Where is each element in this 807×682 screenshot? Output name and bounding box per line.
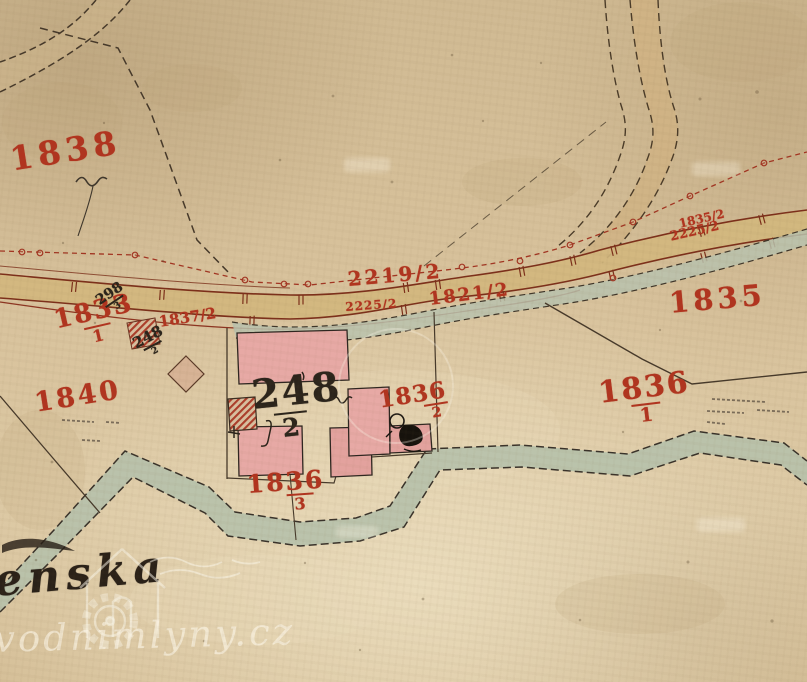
red-survey-lines [0,152,807,287]
map-drawing [0,0,807,682]
building-diamond-outline [168,356,204,392]
parcel-number: 1837/2 [158,307,217,330]
watermark-fragment [336,526,378,538]
script-swash [2,539,75,553]
parcel-number: 2219/2 [347,262,443,289]
parcel-number: 1836 [377,379,447,411]
parcel-label-1838: 1838 [8,128,123,175]
parcel-label-248-2: 2482 [250,369,346,445]
corner-path [0,0,130,92]
paper-speckles [35,54,774,652]
watermark-fragment [344,158,390,172]
parcel-number: 1833 [52,292,136,333]
logo-waterwheel-teeth [86,597,134,645]
parcel-number: 248 [250,369,343,415]
paper-light-patches [130,370,560,645]
parcel-number-denominator: 2 [143,340,167,360]
boundary-stone-markers [19,160,767,287]
parcel-labels-layer: 18381833129831837/2248224822219/22225/21… [0,0,807,682]
meadow-symbol [76,177,107,236]
parcel-number: 1835 [668,282,767,317]
parcel-number-denominator: 3 [105,295,129,317]
parcel-label-1835: 1835 [668,282,767,317]
logo-walls [87,583,158,638]
parcel-number-denominator: 2 [424,401,451,422]
ink-marks [228,372,352,446]
parcel-label-1833-1: 18331 [52,292,140,354]
watermill-symbol [386,414,423,451]
old-road-boundary-line [0,290,580,329]
building-lower-mid [330,427,372,477]
parcel-number-denominator: 2 [274,410,310,443]
road-survey-ticks [71,214,775,326]
watermark-logo-layer [0,0,807,682]
parcel-number: 1838 [8,128,123,175]
parcel-label-1836-2: 18362 [377,379,450,429]
logo-waterwheel-rim [95,606,125,636]
parcel-label-1821-2: 1821/2 [428,282,511,308]
main-road [0,210,807,329]
parcel-number: 1836 [597,369,691,408]
building-lower-left [238,426,303,476]
logo-roof [80,549,165,588]
parcel-number: 1840 [33,378,123,416]
logo-water-waves [150,558,260,578]
parcel-number: 298 [94,281,125,308]
stream-mill-race [0,431,807,612]
paper-grain-overlay [0,0,807,682]
parcel-label-1835-2: 1835/2 [678,209,725,230]
site-watermark-text: vodnimlyny.cz [0,610,296,661]
cadastral-map-canvas[interactable]: 18381833129831837/2248224822219/22225/21… [0,0,807,682]
paper-aging-blotches [0,2,807,634]
parcel-label-2225-2-east: 2225/2 [669,221,720,244]
building-main [237,330,349,384]
parcel-number: 1835/2 [678,209,725,230]
farmstead-buildings [127,318,432,477]
illegible-annotations [62,399,789,441]
watermill-house-logo [80,549,260,645]
parcel-label-1836-1: 18361 [597,369,694,431]
parcel-number: 1821/2 [428,282,511,308]
parcel-number: 1836 [246,468,325,496]
building-right-foot [390,424,432,453]
parcel-label-2225-2-road: 2225/2 [345,298,398,313]
watermark-fragment [692,162,740,176]
parcel-label-298-3: 2983 [94,281,133,319]
place-name-script: enska [0,541,170,607]
parcel-number-denominator: 3 [287,492,315,514]
parcel-label-1837-2: 1837/2 [158,307,217,330]
parcel-number: 2225/2 [669,221,720,244]
watermark-fragment [697,518,745,532]
logo-waterwheel-hub [106,617,114,625]
parcel-number-denominator: 1 [84,322,115,347]
parcel-number: 248 [131,324,165,351]
watermark-circle [339,329,453,443]
building-right-wing [348,387,390,456]
parcel-number: 2225/2 [345,298,398,313]
parcel-label-1836-3: 18363 [246,468,326,517]
parcel-label-248-2-small: 2482 [131,324,171,363]
parcel-label-1840: 1840 [33,378,123,416]
building-hatched-barn [228,397,257,431]
hill-path [558,0,678,263]
building-hatched-small [127,318,160,349]
parcel-number-denominator: 1 [631,401,663,427]
parcel-label-2219-2: 2219/2 [347,262,443,289]
parcel-boundaries [0,28,807,540]
stream-head-race [232,229,807,343]
logo-door [113,598,131,638]
